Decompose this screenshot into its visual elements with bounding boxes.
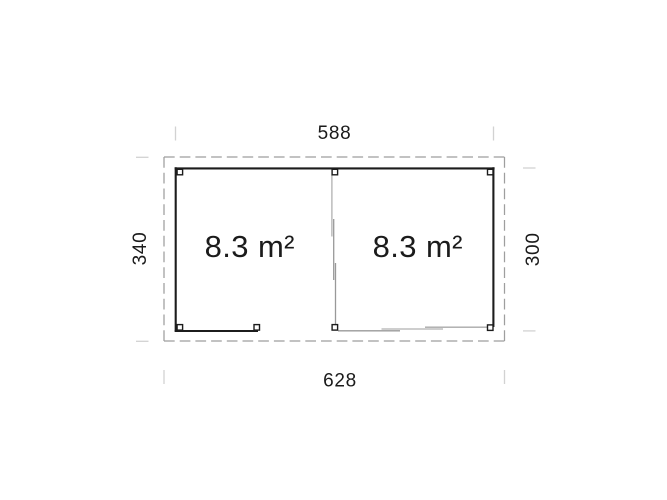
svg-text:8.3 m²: 8.3 m² bbox=[373, 229, 463, 264]
svg-text:300: 300 bbox=[523, 232, 544, 266]
svg-text:628: 628 bbox=[323, 371, 357, 392]
svg-text:8.3 m²: 8.3 m² bbox=[205, 229, 295, 264]
svg-text:588: 588 bbox=[318, 123, 352, 144]
svg-text:340: 340 bbox=[130, 232, 151, 266]
